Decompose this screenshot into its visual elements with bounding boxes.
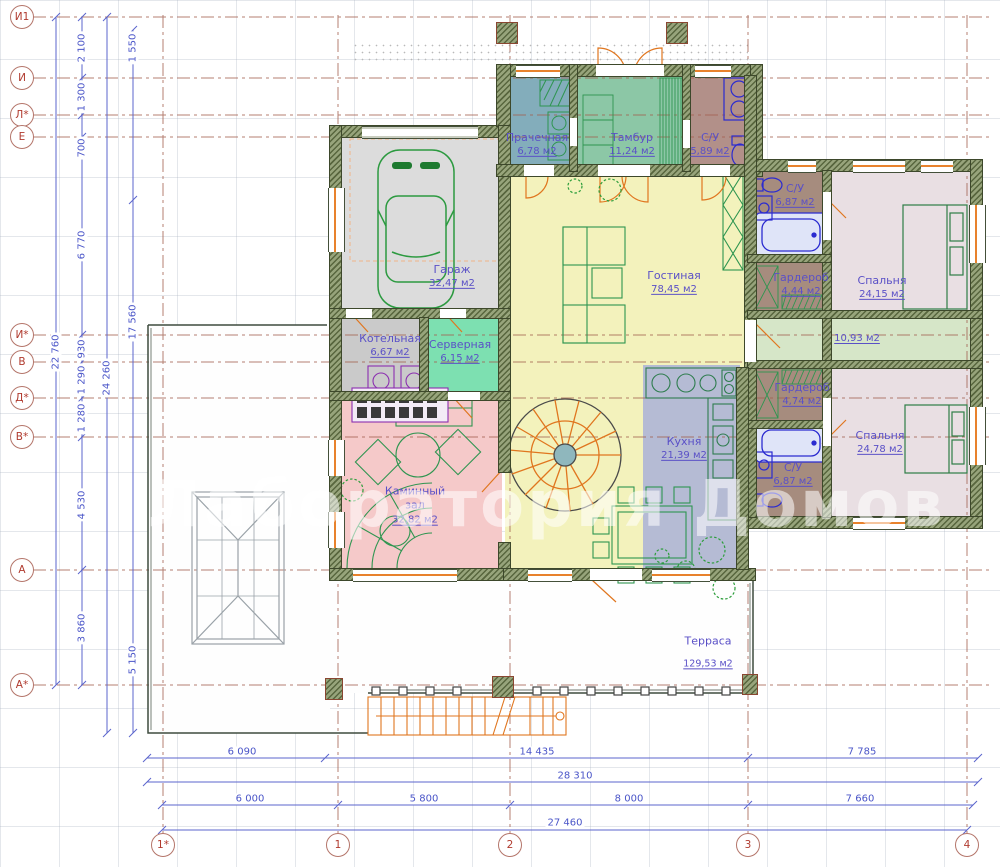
window <box>652 569 710 582</box>
axis-bubble: Л* <box>10 103 34 127</box>
door-opening <box>448 392 480 400</box>
dimension-label: 3 860 <box>77 612 88 645</box>
dimension-label: 7 785 <box>846 747 879 758</box>
floor-plan: Гараж32,47 м2 Прачечная6,78 м2 Тамбур11,… <box>0 0 1000 867</box>
window <box>353 569 457 582</box>
entrance-door-opening <box>596 65 664 76</box>
garage-door <box>362 126 478 139</box>
axis-bubble: В* <box>10 425 34 449</box>
dimension-label: 8 000 <box>613 794 646 805</box>
dimension-label: 22 760 <box>51 333 62 372</box>
terrace-door-opening <box>590 569 642 580</box>
railing-posts <box>372 687 730 695</box>
dimension-label: 6 000 <box>234 794 267 805</box>
wall-segment <box>330 392 510 400</box>
window <box>788 160 816 173</box>
axis-bubble: 1* <box>151 833 175 857</box>
door-opening <box>524 165 554 176</box>
garage-overhang <box>350 139 502 261</box>
glass-roof-icon <box>192 492 284 644</box>
axis-bubble: Е <box>10 125 34 149</box>
axis-bubble: Д* <box>10 386 34 410</box>
axis-bubble: В <box>10 350 34 374</box>
tambour-closet-icon <box>583 78 684 170</box>
window <box>853 160 905 173</box>
door-opening <box>745 320 756 362</box>
steps-icon <box>368 697 566 735</box>
door-opening <box>598 165 650 176</box>
axis-bubble: 3 <box>736 833 760 857</box>
dimension-label: 4 530 <box>77 489 88 522</box>
dimension-label: 5 800 <box>408 794 441 805</box>
car-icon <box>378 150 454 308</box>
dimension-label: 5 150 <box>128 644 139 677</box>
door-opening <box>346 309 372 318</box>
window <box>328 440 345 476</box>
window <box>516 65 560 78</box>
dimension-label: 27 460 <box>546 818 585 829</box>
spiral-stair-icon <box>509 399 621 511</box>
dimension-label: 28 310 <box>556 771 595 782</box>
window <box>695 65 731 78</box>
door-opening <box>570 118 577 146</box>
axis-bubble: 4 <box>955 833 979 857</box>
axis-bubble: И* <box>10 323 34 347</box>
laundry-appliances-icon <box>540 80 572 160</box>
axis-bubble: 1 <box>326 833 350 857</box>
axis-bubble: А <box>10 558 34 582</box>
fireplace-icon <box>347 400 481 568</box>
dimension-label: 14 435 <box>518 747 557 758</box>
wall-segment <box>748 361 982 368</box>
wall-segment <box>499 126 510 318</box>
living-cabinet-icon <box>723 173 743 270</box>
wall-segment <box>499 398 510 472</box>
window <box>969 407 986 465</box>
dimension-label: 1 280 <box>77 402 88 435</box>
wall-segment <box>420 318 428 392</box>
window <box>969 205 986 263</box>
window <box>328 188 345 252</box>
column <box>742 674 758 695</box>
window <box>328 512 345 548</box>
wall-segment <box>737 368 748 569</box>
dimension-label: 700 <box>77 136 88 159</box>
window <box>853 517 905 530</box>
column <box>492 676 514 698</box>
axis-bubble: А* <box>10 673 34 697</box>
door-opening <box>823 398 831 446</box>
wall-segment <box>499 318 510 398</box>
axis-gridlines <box>33 15 992 833</box>
door-opening <box>683 120 690 148</box>
dimension-label: 6 770 <box>77 229 88 262</box>
door-opening <box>823 192 831 240</box>
bed-icon <box>903 205 967 473</box>
dimension-label: 930 <box>77 337 88 360</box>
window <box>528 569 572 582</box>
axis-bubble: 2 <box>498 833 522 857</box>
wall-segment <box>748 421 831 428</box>
wall-segment <box>748 311 982 318</box>
door-opening <box>700 165 730 176</box>
dimension-label: 24 260 <box>102 359 113 398</box>
axis-bubble: И <box>10 66 34 90</box>
dimension-label: 1 550 <box>128 32 139 65</box>
dimension-label: 1 290 <box>77 364 88 397</box>
wall-segment <box>497 65 510 126</box>
wardrobe-shelves-icon <box>756 266 826 418</box>
dimension-label: 6 090 <box>226 747 259 758</box>
dimension-label: 17 560 <box>128 303 139 342</box>
door-opening <box>440 309 466 318</box>
window <box>921 160 953 173</box>
wall-segment <box>683 65 690 171</box>
axis-bubble: И1 <box>10 5 34 29</box>
dimension-label: 2 100 <box>77 32 88 65</box>
terrace-outline <box>148 325 753 733</box>
column <box>325 678 343 700</box>
dimension-label: 1 300 <box>77 81 88 114</box>
wall-segment <box>748 255 831 262</box>
kitchen-counter-icon <box>646 368 738 520</box>
column <box>496 22 518 44</box>
sofa-icon <box>563 227 625 343</box>
dimension-label: 7 660 <box>844 794 877 805</box>
column <box>666 22 688 44</box>
